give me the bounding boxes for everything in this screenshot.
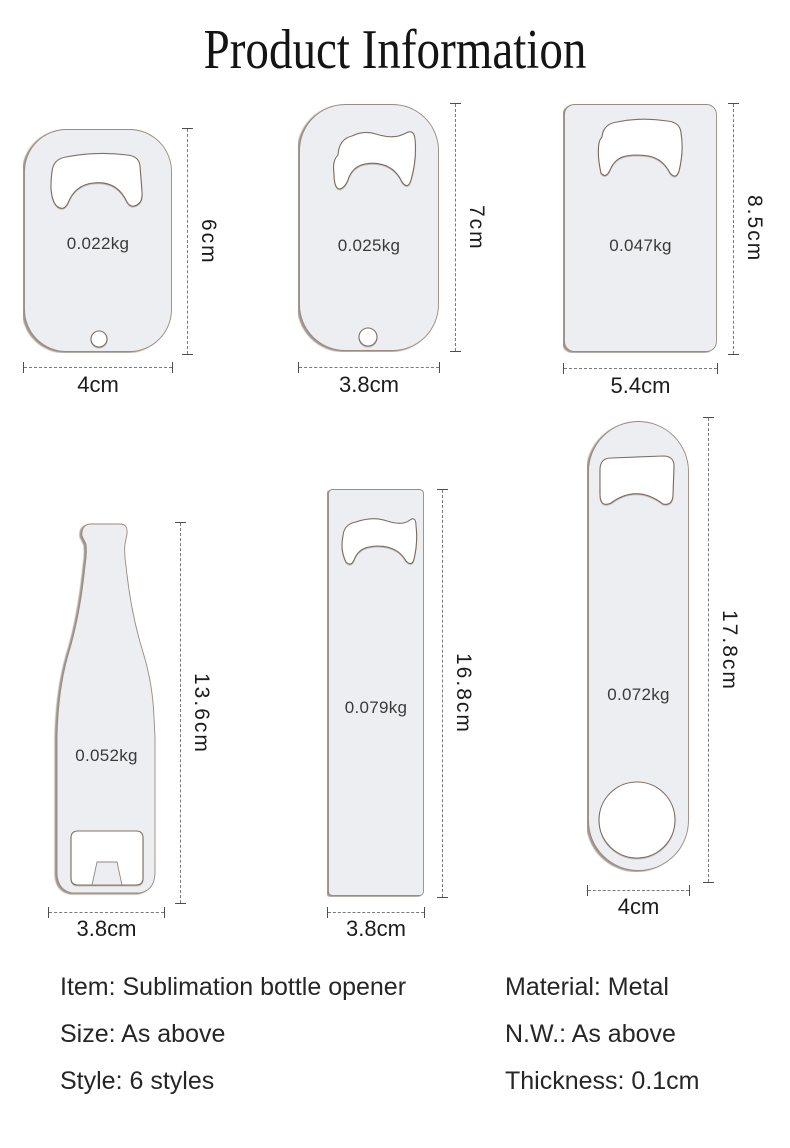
width-dimension-label: 3.8cm <box>298 372 440 398</box>
dashed-line <box>442 490 443 897</box>
height-dimension-label: 13.6cm <box>187 522 215 904</box>
dashed-line <box>328 912 424 913</box>
dashed-line <box>299 367 439 368</box>
spec-item-style: Style: 6 styles <box>60 1066 406 1096</box>
weight-label: 0.079kg <box>327 698 425 718</box>
weight-label: 0.072kg <box>587 685 690 705</box>
dashed-line <box>49 912 164 913</box>
spec-item-thickness: Thickness: 0.1cm <box>505 1066 700 1096</box>
height-dimension-line <box>703 417 714 883</box>
width-dimension-label: 3.8cm <box>327 916 425 942</box>
spec-item-name: Item: Sublimation bottle opener <box>60 972 406 1002</box>
opener-tooth <box>92 862 122 885</box>
keyring-hole <box>91 331 107 347</box>
height-dimension-line <box>728 103 739 355</box>
spec-item-netweight: N.W.: As above <box>505 1019 700 1049</box>
width-dimension-label: 3.8cm <box>48 916 165 942</box>
height-dimension-line <box>437 489 448 898</box>
height-dimension-label: 8.5cm <box>740 103 768 355</box>
product-information-sheet: Product Information 0.022kg 6cm 4cm 0.02… <box>0 0 790 1148</box>
height-dimension-line <box>450 103 461 352</box>
weight-label: 0.025kg <box>298 236 440 256</box>
page-title: Product Information <box>63 18 727 82</box>
opener-flat-bar-shape <box>327 488 425 897</box>
opener-speed-paddle-shape <box>587 420 690 872</box>
finger-hole <box>599 782 675 858</box>
weight-label: 0.022kg <box>23 234 173 254</box>
height-dimension-line <box>182 128 193 355</box>
dashed-line <box>564 368 717 369</box>
dashed-line <box>180 523 181 903</box>
specs-left-column: Item: Sublimation bottle opener Size: As… <box>60 972 406 1096</box>
weight-label: 0.052kg <box>48 746 165 766</box>
specs-right-column: Material: Metal N.W.: As above Thickness… <box>505 972 700 1096</box>
opener-rounded-tag-shape <box>298 103 440 352</box>
width-dimension-label: 5.4cm <box>563 373 718 399</box>
width-dimension-label: 4cm <box>23 372 173 398</box>
spec-item-material: Material: Metal <box>505 972 700 1002</box>
height-dimension-line <box>175 522 186 904</box>
height-dimension-label: 7cm <box>462 103 490 352</box>
height-dimension-label: 16.8cm <box>449 489 477 898</box>
opener-bottle-shape <box>48 522 165 898</box>
dashed-line <box>187 129 188 354</box>
dashed-line <box>588 890 689 891</box>
height-dimension-label: 6cm <box>194 128 222 355</box>
width-dimension-label: 4cm <box>587 894 690 920</box>
dashed-line <box>455 104 456 351</box>
spec-item-size: Size: As above <box>60 1019 406 1049</box>
dashed-line <box>24 367 172 368</box>
weight-label: 0.047kg <box>563 236 718 256</box>
dashed-line <box>733 104 734 354</box>
height-dimension-label: 17.8cm <box>715 417 743 883</box>
keyring-hole <box>359 328 377 346</box>
opener-credit-card-shape <box>563 103 718 353</box>
dashed-line <box>708 418 709 882</box>
